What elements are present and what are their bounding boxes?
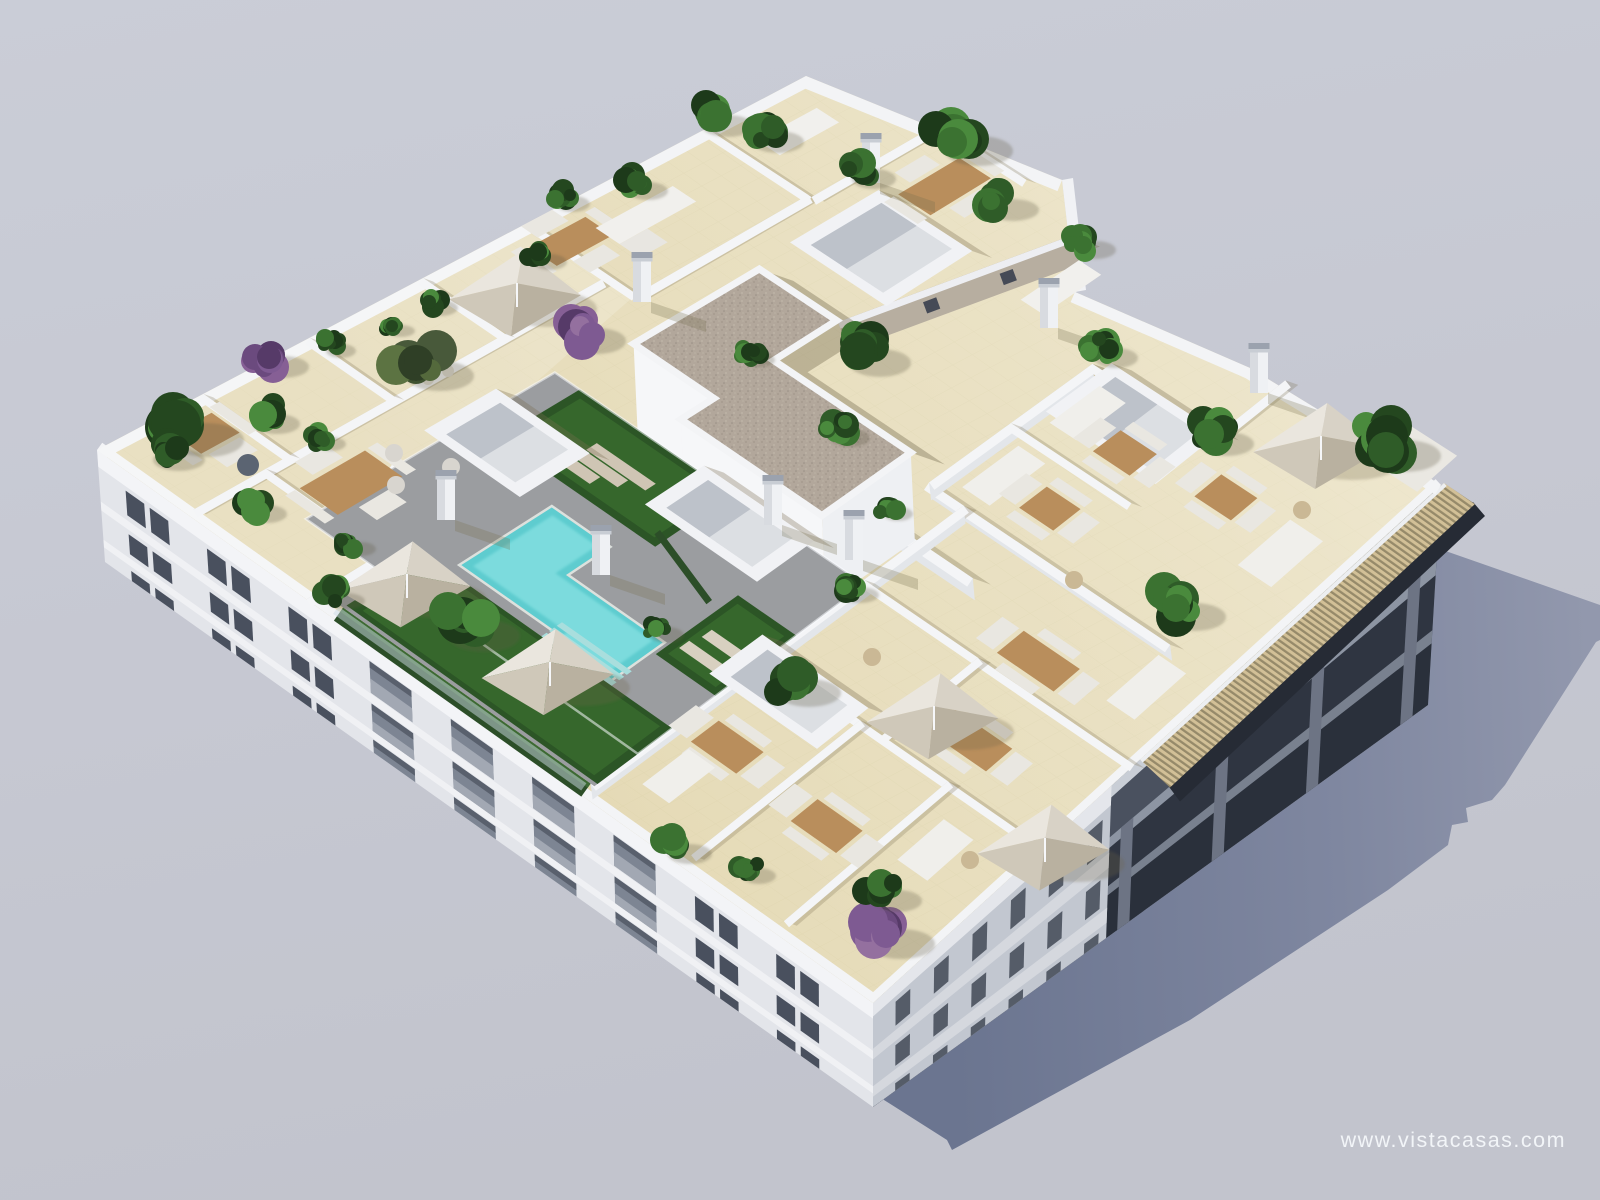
svg-text:www.vistacasas.com: www.vistacasas.com bbox=[1340, 1128, 1566, 1152]
